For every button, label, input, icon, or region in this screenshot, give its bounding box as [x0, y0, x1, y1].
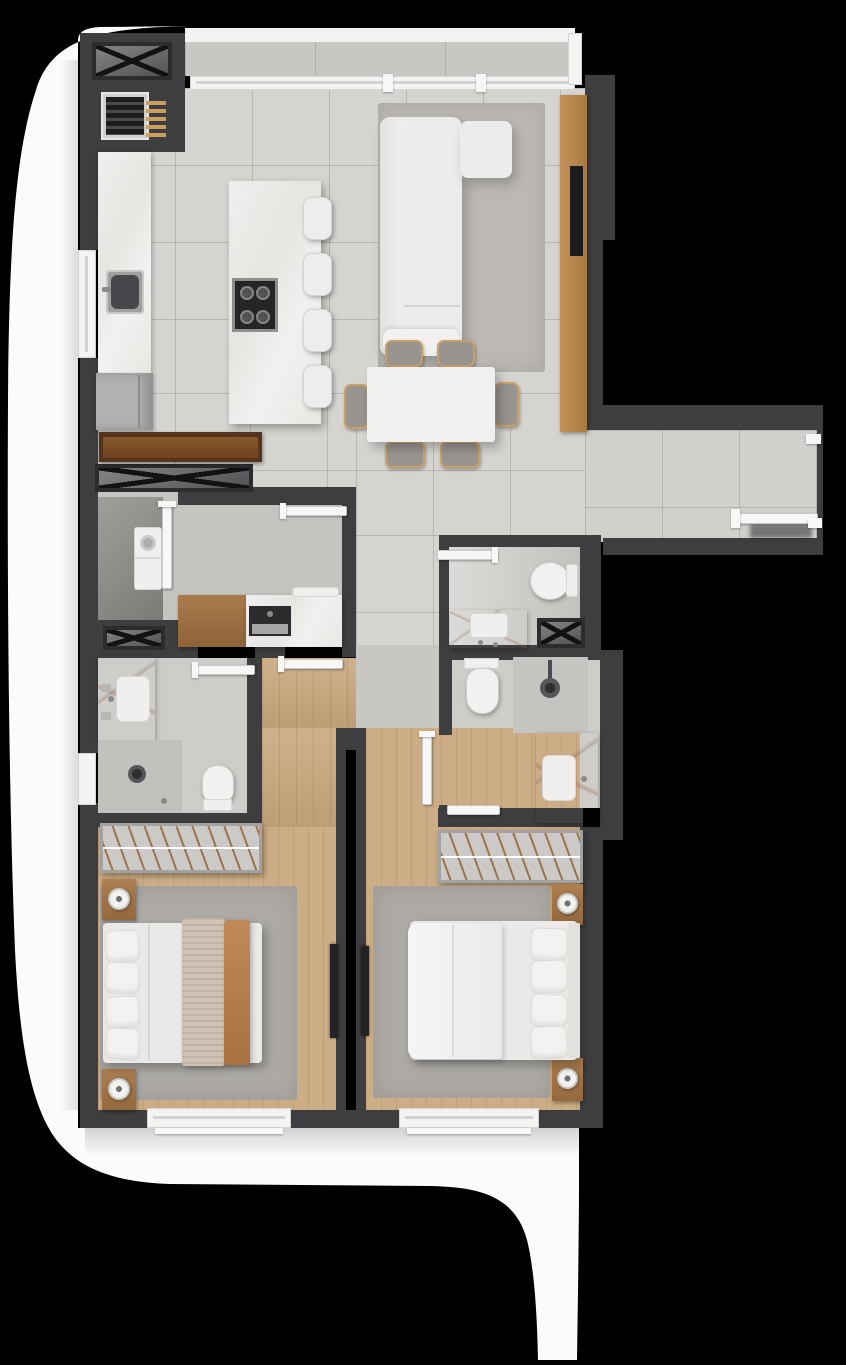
- bed2-duvet-fold: [452, 925, 454, 1057]
- floor-plan-canvas: [0, 0, 846, 1365]
- bedroom2-lamp-bottom: [557, 1068, 578, 1089]
- bed2-headboard: [568, 923, 580, 1058]
- bed2-pillow-4: [529, 1025, 569, 1060]
- bed2-duvet: [408, 923, 502, 1059]
- bedroom2-lamp-top: [557, 893, 578, 914]
- bedroom2-wardrobe: [438, 830, 583, 883]
- bed2-pillow-1: [529, 927, 568, 961]
- bed2-pillow-2: [529, 959, 568, 993]
- room-bedroom2: [0, 0, 846, 1365]
- bed2-pillow-3: [529, 993, 569, 1028]
